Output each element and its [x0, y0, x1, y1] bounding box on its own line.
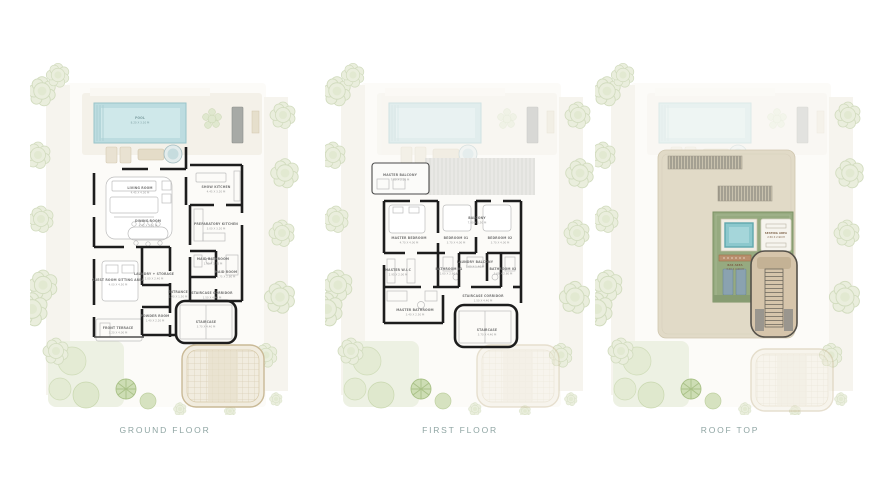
room-label-bathroom-01: BATHROOM 01	[436, 267, 463, 271]
caption-roof-top: ROOF TOP	[595, 425, 865, 435]
svg-text:3.70 X 4.00 M: 3.70 X 4.00 M	[491, 240, 510, 244]
pool-deck	[82, 88, 262, 163]
room-label-master-balcony: MASTER BALCONY	[383, 173, 418, 177]
ground-floor-drawing: POOL 8.20 X 3.10 M LIVING ROOM 4.45 X 4.…	[30, 55, 300, 415]
svg-text:3.70 X 4.40 M: 3.70 X 4.40 M	[478, 332, 497, 336]
ground-floor-plan: POOL 8.20 X 3.10 M LIVING ROOM 4.45 X 4.…	[30, 55, 300, 435]
svg-text:3.40 X 2.50 M: 3.40 X 2.50 M	[406, 312, 425, 316]
svg-text:2.95 X 2.00 M: 2.95 X 2.00 M	[389, 272, 408, 276]
caption-ground-floor: GROUND FLOOR	[30, 425, 300, 435]
svg-text:2.40 X 1.50 M: 2.40 X 1.50 M	[169, 294, 188, 298]
room-label-laundry-storage: LAUNDRY + STORAGE	[134, 272, 174, 276]
svg-text:1.50 X 4.40 M: 1.50 X 4.40 M	[474, 298, 493, 302]
carport-pergola	[182, 345, 264, 407]
svg-text:7.00 X 2.20 M: 7.00 X 2.20 M	[391, 177, 410, 181]
svg-text:1.75 X 2.80 M: 1.75 X 2.80 M	[217, 274, 236, 278]
sun-lounger	[736, 269, 746, 295]
svg-text:8.20 X 3.10 M: 8.20 X 3.10 M	[131, 120, 150, 124]
room-label-staircase-corridor: STAIRCASE CORRIDOR	[462, 294, 504, 298]
svg-text:3.00 X 3.20 M: 3.00 X 3.20 M	[207, 226, 226, 230]
svg-text:1.40 X 2.20 M: 1.40 X 2.20 M	[146, 318, 165, 322]
stair-bulkhead	[751, 251, 797, 337]
room-label-seating-area: SEATING AREA	[765, 231, 787, 235]
room-label-pool: POOL	[135, 116, 145, 120]
svg-text:3.40 X 0.60 M: 3.40 X 0.60 M	[726, 267, 743, 271]
svg-text:1.60 X 1.75 M: 1.60 X 1.75 M	[204, 261, 223, 265]
room-label-staircase: STAIRCASE	[196, 320, 216, 324]
room-label-front-terrace: FRONT TERRACE	[103, 326, 134, 330]
room-label-balcony: BALCONY	[468, 216, 486, 220]
svg-text:1.60 X 2.60 M: 1.60 X 2.60 M	[440, 271, 459, 275]
room-label-laundry-balcony: LAUNDRY BALCONY	[457, 260, 494, 264]
caption-first-floor: FIRST FLOOR	[325, 425, 595, 435]
room-label-powder: POWDER ROOM	[141, 314, 170, 318]
svg-text:1.60 X 2.60 M: 1.60 X 2.60 M	[494, 271, 513, 275]
room-label-bar-area: BAR AREA	[727, 263, 742, 267]
room-label-maid-bathroom: MAID BATHROOM	[197, 257, 229, 261]
room-label-master-wic: MASTER W.I.C	[385, 268, 412, 272]
room-label-entrance: ENTRANCE	[168, 290, 188, 294]
svg-text:4.45 X 4.30 M: 4.45 X 4.30 M	[131, 190, 150, 194]
room-label-staircase: STAIRCASE	[477, 328, 497, 332]
room-label-maid-room: MAID ROOM	[215, 270, 237, 274]
pergola-slats-mid	[718, 186, 772, 201]
roof-top-drawing: SEATING AREA 2.50 X 2.90 M BAR AREA 3.40…	[595, 55, 865, 415]
carport-faded	[751, 349, 833, 411]
svg-text:4.70 X 4.00 M: 4.70 X 4.00 M	[400, 240, 419, 244]
room-label-bathroom-02: BATHROOM 02	[490, 267, 517, 271]
svg-text:2.50 X 2.90 M: 2.50 X 2.90 M	[767, 235, 784, 239]
room-label-master-bathroom: MASTER BATHROOM	[396, 308, 434, 312]
floor-plans-sheet: POOL 8.20 X 3.10 M LIVING ROOM 4.45 X 4.…	[0, 0, 890, 500]
svg-text:3.70 X 4.40 M: 3.70 X 4.40 M	[197, 324, 216, 328]
sun-lounger	[723, 269, 733, 295]
balcony-slab-hatch	[425, 158, 535, 195]
svg-text:4.45 X 3.20 M: 4.45 X 3.20 M	[207, 189, 226, 193]
svg-text:1.60 X 1.40 M: 1.60 X 1.40 M	[466, 264, 485, 268]
first-floor-plan: MASTER BALCONY 7.00 X 2.20 M BALCONY 7.0…	[325, 55, 595, 435]
room-label-bedroom-02: BEDROOM 02	[488, 236, 513, 240]
svg-text:3.70 X 4.00 M: 3.70 X 4.00 M	[447, 240, 466, 244]
room-label-master-bedroom: MASTER BEDROOM	[391, 236, 426, 240]
jacuzzi-water	[729, 227, 749, 243]
svg-text:2.00 X 2.40 M: 2.00 X 2.40 M	[145, 276, 164, 280]
svg-text:3.20 X 4.00 M: 3.20 X 4.00 M	[109, 330, 128, 334]
pergola-slats-top	[668, 156, 742, 169]
room-label-prep-kitchen: PREPARATORY KITCHEN	[194, 222, 238, 226]
room-label-living-room: LIVING ROOM	[127, 186, 152, 190]
roof-top-plan: SEATING AREA 2.50 X 2.90 M BAR AREA 3.40…	[595, 55, 865, 435]
room-label-dining-room: DINING ROOM	[135, 219, 161, 223]
svg-text:7.00 X 1.50 M: 7.00 X 1.50 M	[468, 220, 487, 224]
svg-text:1.50 X 4.40 M: 1.50 X 4.40 M	[203, 295, 222, 299]
room-label-guest-room: GUEST ROOM SITTING AREA	[92, 278, 145, 282]
first-floor-drawing: MASTER BALCONY 7.00 X 2.20 M BALCONY 7.0…	[325, 55, 595, 415]
svg-text:4.00 X 4.50 M: 4.00 X 4.50 M	[109, 282, 128, 286]
room-label-staircase-corridor: STAIRCASE CORRIDOR	[191, 291, 233, 295]
svg-text:4.45 X 3.60 M: 4.45 X 3.60 M	[139, 223, 158, 227]
room-label-show-kitchen: SHOW KITCHEN	[202, 185, 231, 189]
room-label-bedroom-01: BEDROOM 01	[444, 236, 469, 240]
